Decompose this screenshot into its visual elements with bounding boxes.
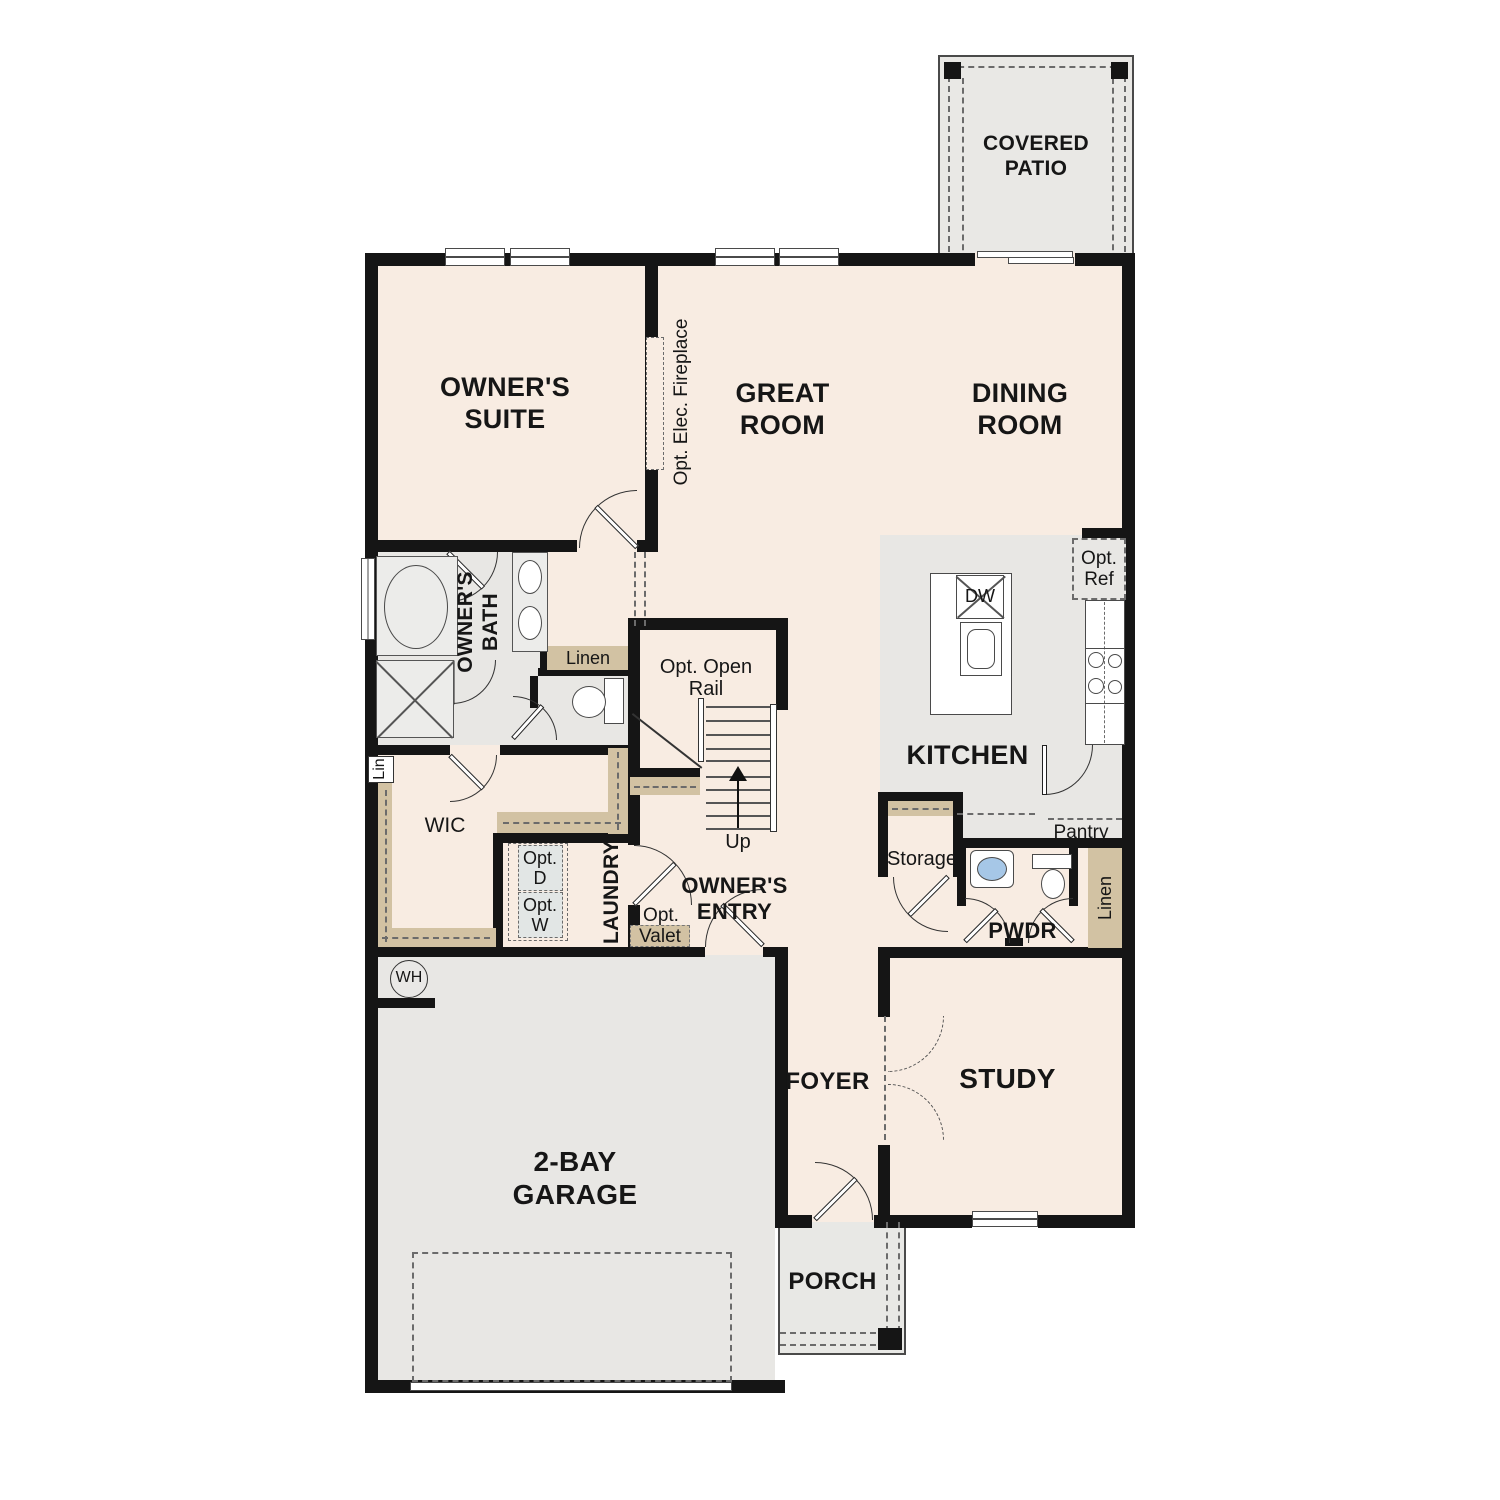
study-door-dash xyxy=(884,1016,886,1140)
stair-rail xyxy=(770,704,777,832)
room-label-laundry: LAUNDRY xyxy=(600,832,624,952)
annotation-opt-open-rail: Opt. Open Rail xyxy=(650,656,762,701)
patio-dash-right xyxy=(1112,78,1114,260)
room-label-great-room: GREAT ROOM xyxy=(710,378,855,442)
garage-apron-dashed xyxy=(412,1252,732,1382)
vanity-sink xyxy=(518,606,542,640)
annotation-opt-valet: Valet xyxy=(632,926,688,947)
window xyxy=(510,248,570,266)
burner xyxy=(1088,678,1104,694)
annotation-lin: Lin xyxy=(371,749,389,789)
wall-segment xyxy=(628,618,640,845)
wall-segment xyxy=(776,618,788,710)
shelf-dash xyxy=(617,752,619,830)
wall-segment xyxy=(1038,1215,1135,1228)
window xyxy=(445,248,505,266)
annotation-linen-hall: Linen xyxy=(1095,868,1115,928)
cased-opening-dash xyxy=(644,552,646,626)
wall-segment xyxy=(778,1215,812,1228)
wall-segment xyxy=(365,253,378,1393)
sliding-door-panel xyxy=(1008,257,1074,264)
porch-dash xyxy=(886,1222,888,1332)
bathtub-basin xyxy=(384,565,448,649)
room-label-wic: WIC xyxy=(410,814,480,838)
shelf-dash xyxy=(503,822,621,824)
porch-dash xyxy=(898,1222,900,1332)
stair-tread xyxy=(706,748,771,750)
room-label-owners-bath: OWNER'S BATH xyxy=(454,547,506,697)
shelf-dash xyxy=(382,937,490,939)
toilet-tank xyxy=(1032,854,1072,869)
annotation-opt-elec-fireplace: Opt. Elec. Fireplace xyxy=(671,297,693,507)
room-label-owners-entry: OWNER'S ENTRY xyxy=(672,873,797,925)
kitchen-sink-basin xyxy=(967,629,995,669)
patio-dash-left xyxy=(962,78,964,260)
wall-segment xyxy=(880,947,1135,958)
window xyxy=(361,558,375,640)
room-label-porch: PORCH xyxy=(785,1268,880,1296)
wall-segment xyxy=(365,998,435,1008)
shelf-dash xyxy=(385,790,387,942)
room-label-storage: Storage xyxy=(883,848,961,870)
garage-door xyxy=(410,1382,732,1391)
porch-post xyxy=(878,1328,902,1350)
annotation-opt-w: Opt. W xyxy=(516,895,564,935)
annotation-up: Up xyxy=(722,831,754,853)
pantry-shelf-dash xyxy=(1048,818,1122,820)
room-label-foyer: FOYER xyxy=(780,1068,875,1096)
cased-opening-dash xyxy=(634,552,636,626)
stair-tread xyxy=(706,760,771,762)
patio-post xyxy=(944,62,961,79)
window xyxy=(715,248,775,266)
wall-segment xyxy=(630,768,700,777)
toilet-bowl xyxy=(1041,869,1065,899)
porch-dash xyxy=(780,1332,886,1334)
room-label-garage: 2-BAY GARAGE xyxy=(490,1145,660,1211)
burner xyxy=(1108,680,1122,694)
window xyxy=(972,1211,1038,1227)
room-label-kitchen: KITCHEN xyxy=(890,740,1045,772)
ceiling-break-dash xyxy=(957,813,1035,815)
wall-segment xyxy=(628,618,788,630)
room-label-pwdr: PWDR xyxy=(975,918,1070,944)
window xyxy=(779,248,839,266)
annotation-dw: DW xyxy=(960,586,1000,606)
floorplan: COVERED PATIO OWNER'S SUITE GREAT ROOM D… xyxy=(0,0,1500,1500)
patio-post xyxy=(1111,62,1128,79)
room-label-dining-room: DINING ROOM xyxy=(945,378,1095,442)
porch-dash xyxy=(780,1344,886,1346)
burner xyxy=(1108,654,1122,668)
up-arrow-head xyxy=(729,766,747,781)
annotation-opt-ref: Opt. Ref xyxy=(1074,548,1124,591)
vanity-sink xyxy=(518,560,542,594)
up-arrow xyxy=(737,778,739,828)
pwdr-sink-basin xyxy=(977,857,1007,881)
room-label-covered-patio: COVERED PATIO xyxy=(970,132,1102,182)
room-label-pantry: Pantry xyxy=(1048,822,1114,843)
stair-tread xyxy=(706,828,770,830)
room-label-study: STUDY xyxy=(940,1062,1075,1095)
toilet-tank xyxy=(604,678,624,724)
wall-segment xyxy=(763,947,788,957)
annotation-wh: WH xyxy=(391,969,427,987)
stair-rail xyxy=(698,698,704,762)
fireplace-dashed xyxy=(646,337,664,470)
annotation-opt-valet-prefix: Opt. xyxy=(640,905,682,926)
shelf-dash xyxy=(634,786,696,788)
wall-segment xyxy=(878,1145,890,1228)
wall-segment xyxy=(365,947,705,957)
burner xyxy=(1088,652,1104,668)
annotation-opt-d: Opt. D xyxy=(516,848,564,888)
annotation-linen-bath: Linen xyxy=(558,648,618,668)
stair-tread xyxy=(706,706,771,708)
wall-segment xyxy=(878,947,890,1017)
stair-tread xyxy=(706,734,771,736)
toilet-bowl xyxy=(572,686,606,718)
stair-tread xyxy=(706,720,771,722)
room-label-owners-suite: OWNER'S SUITE xyxy=(415,372,595,436)
shelf-dash xyxy=(892,808,949,810)
